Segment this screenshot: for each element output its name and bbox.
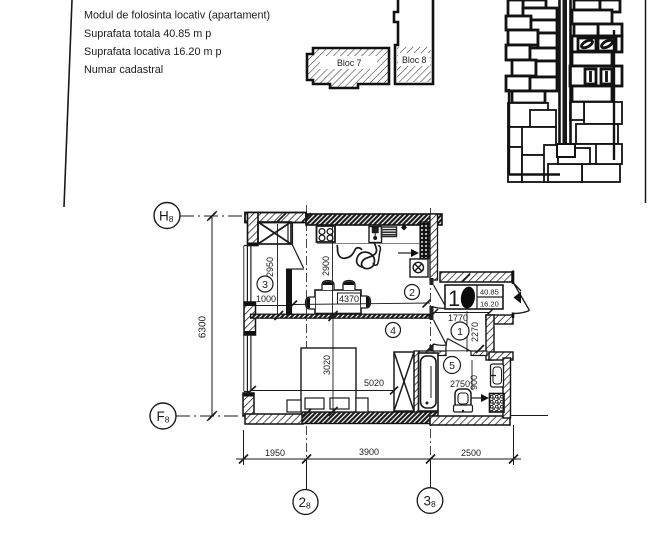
svg-text:Suprafata locativa 16.20 m p: Suprafata locativa 16.20 m p <box>84 46 221 58</box>
svg-text:Modul de folosinta locativ (a: Modul de folosinta locativ (apartament) <box>84 10 270 22</box>
svg-text:1950: 1950 <box>265 448 285 458</box>
svg-text:3900: 3900 <box>359 447 379 457</box>
svg-text:3: 3 <box>262 279 268 291</box>
svg-text:40.85: 40.85 <box>480 288 499 297</box>
svg-text:4370: 4370 <box>339 294 359 304</box>
svg-text:2: 2 <box>409 287 415 299</box>
svg-text:1770: 1770 <box>448 313 468 323</box>
svg-text:6300: 6300 <box>198 315 209 338</box>
svg-text:Bloc 7: Bloc 7 <box>337 58 362 68</box>
svg-text:16.20: 16.20 <box>480 300 499 309</box>
svg-text:3020: 3020 <box>322 355 332 375</box>
svg-text:2900: 2900 <box>321 256 331 276</box>
svg-text:5: 5 <box>449 360 455 372</box>
svg-text:1: 1 <box>448 286 460 311</box>
svg-text:2270: 2270 <box>470 322 480 342</box>
svg-text:Bloc 8: Bloc 8 <box>402 55 427 65</box>
svg-text:2950: 2950 <box>265 257 275 277</box>
svg-text:2500: 2500 <box>461 448 481 458</box>
svg-text:1: 1 <box>457 326 463 338</box>
svg-text:2750: 2750 <box>450 379 470 389</box>
svg-text:Suprafata totala 40.85 m p: Suprafata totala 40.85 m p <box>84 28 211 40</box>
svg-text:1000: 1000 <box>256 294 276 304</box>
svg-text:900: 900 <box>469 375 479 390</box>
svg-text:Numar cadastral: Numar cadastral <box>84 64 163 76</box>
svg-text:4: 4 <box>390 325 396 337</box>
svg-text:5020: 5020 <box>364 378 384 388</box>
